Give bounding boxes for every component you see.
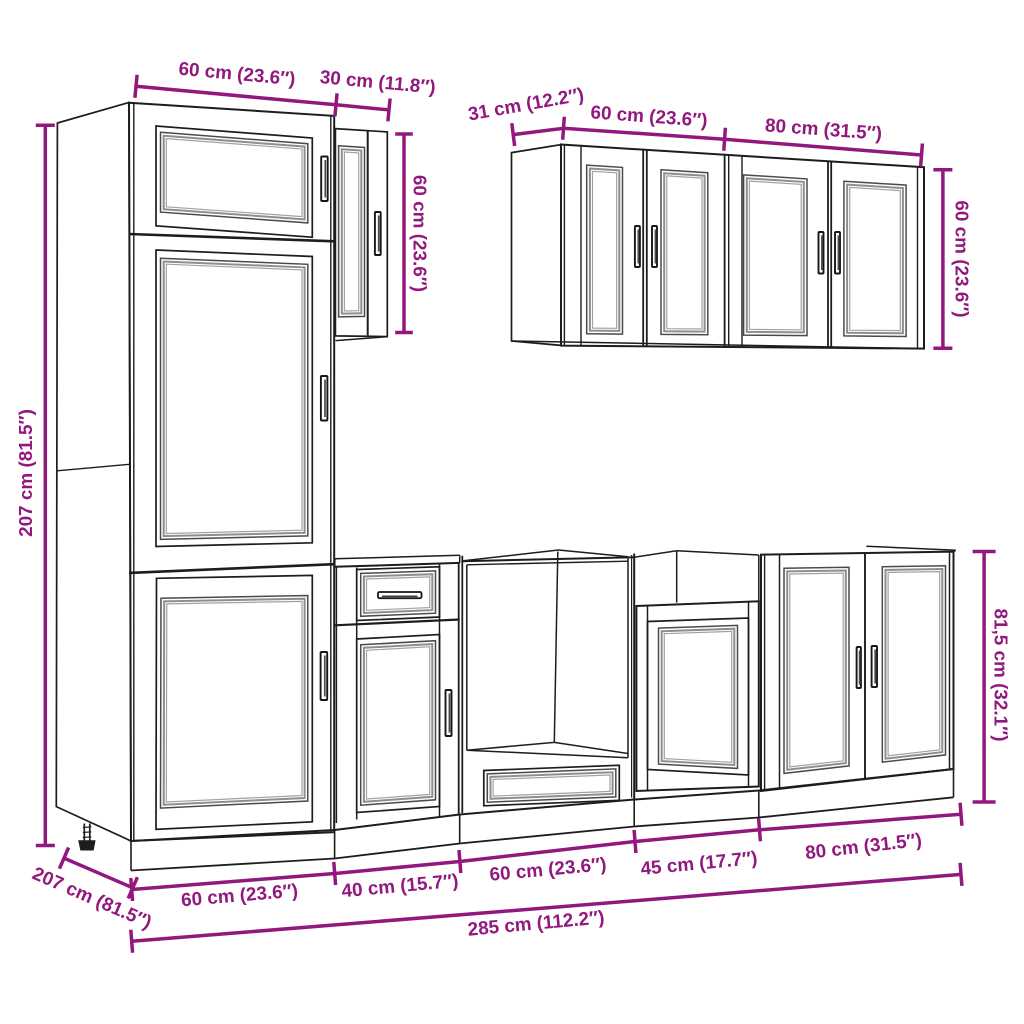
svg-text:81,5 cm (32.1″): 81,5 cm (32.1″) [990,609,1011,742]
svg-text:60 cm (23.6″): 60 cm (23.6″) [951,200,972,317]
svg-text:207 cm (81.5″): 207 cm (81.5″) [16,409,37,537]
svg-text:60 cm (23.6″): 60 cm (23.6″) [409,175,430,292]
